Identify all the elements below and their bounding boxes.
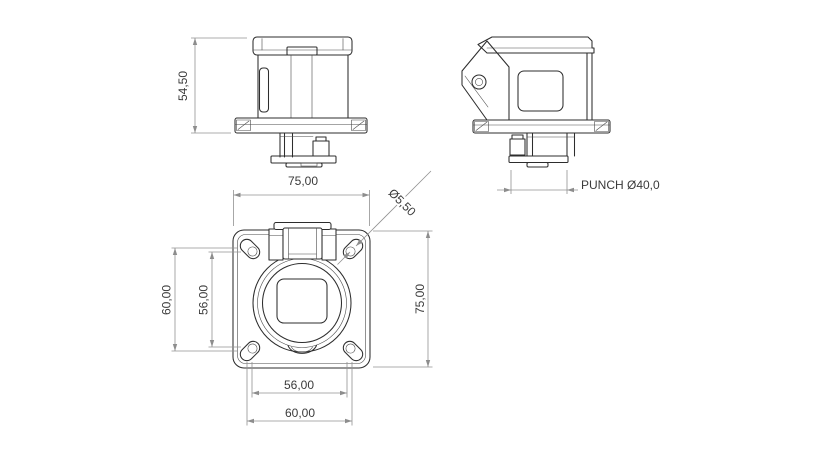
dim-front-height-label: 54,50 (176, 71, 190, 101)
lid-window (277, 279, 327, 323)
arrow-right (363, 193, 370, 197)
front-body (258, 55, 348, 118)
front-cap-tab (287, 47, 317, 55)
arrow-down (173, 344, 177, 351)
arrow-up (173, 248, 177, 255)
arrow-left (247, 419, 254, 423)
side-rear-assembly (509, 133, 575, 167)
arrow-left (252, 391, 259, 395)
dim-bottom-outer-label: 60,00 (285, 406, 315, 420)
arrow-down (426, 360, 430, 367)
socket-lid (263, 264, 342, 343)
dim-left-outer-label: 60,00 (160, 285, 174, 315)
mounting-slot-bottom-left (238, 339, 263, 364)
side-view (462, 37, 610, 167)
dim-front-height: 54,50 (176, 38, 247, 133)
mounting-slot-top-left (238, 237, 263, 262)
side-label-plate (518, 71, 563, 111)
front-rear-assembly (271, 133, 336, 167)
dim-bottom-inner-label: 56,00 (284, 378, 314, 392)
side-flange (473, 120, 610, 133)
front-view (235, 37, 367, 167)
mounting-slot-bottom-right (341, 339, 366, 364)
dim-bottom-inner: 56,00 (252, 362, 347, 398)
socket-outer-ring (253, 254, 351, 352)
dim-bottom-width: 75,00 (234, 174, 370, 226)
dim-left-inner: 56,00 (197, 252, 242, 347)
bottom-view (233, 223, 370, 369)
arrow-down (210, 340, 214, 347)
arrow-right (345, 419, 352, 423)
dim-bottom-outer: 60,00 (247, 362, 352, 426)
arrow-down (193, 126, 197, 133)
dim-punch: PUNCH Ø40,0 (497, 170, 660, 194)
arrow-left (567, 188, 574, 192)
lid-latch (269, 223, 336, 261)
arrow-right (340, 391, 347, 395)
dim-bottom-height-label: 75,00 (413, 284, 427, 314)
dim-bottom-height: 75,00 (373, 231, 433, 367)
technical-drawing: 54,50 PUNCH Ø40,0 (0, 0, 825, 464)
arrow-right (504, 188, 511, 192)
front-side-tab (260, 68, 269, 112)
dim-left-inner-label: 56,00 (197, 285, 211, 315)
dim-bottom-width-label: 75,00 (288, 174, 318, 188)
front-flange (235, 118, 367, 133)
front-cap (253, 37, 352, 55)
hinge-pin (472, 75, 486, 89)
drawing-sheet: 54,50 PUNCH Ø40,0 (0, 0, 825, 464)
arrow-left (234, 193, 241, 197)
dim-punch-label: PUNCH Ø40,0 (581, 178, 660, 192)
arrow-up (193, 38, 197, 45)
arrow-up (426, 231, 430, 238)
arrow-up (210, 252, 214, 259)
dim-hole-diameter: Ø5,50 (338, 171, 432, 265)
